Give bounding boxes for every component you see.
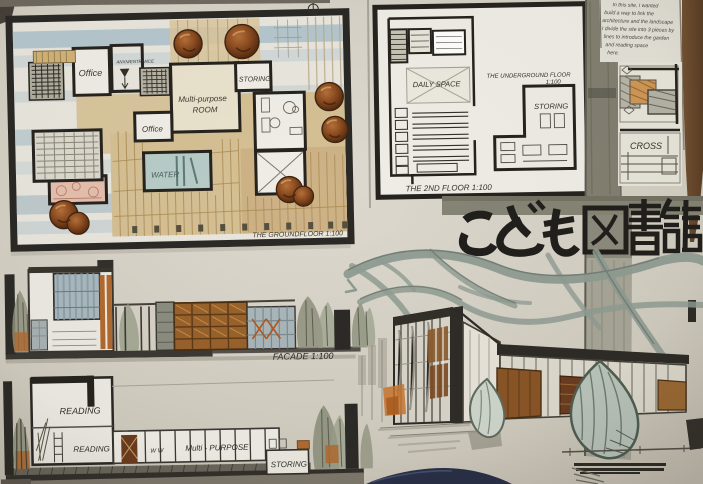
svg-text:DAILY SPACE: DAILY SPACE <box>413 79 462 89</box>
svg-text:Office: Office <box>79 68 103 79</box>
svg-text:here.: here. <box>607 50 619 56</box>
svg-text:STORING: STORING <box>239 76 271 84</box>
svg-text:1:100: 1:100 <box>546 80 562 86</box>
svg-text:Multi - PURPOSE: Multi - PURPOSE <box>185 443 249 453</box>
svg-text:W W: W W <box>150 448 164 454</box>
svg-text:ANXN/ENTRANCE: ANXN/ENTRANCE <box>115 59 154 65</box>
svg-text:READING: READING <box>73 444 110 454</box>
svg-text:Office: Office <box>142 124 164 133</box>
svg-text:CROSS: CROSS <box>630 141 662 151</box>
svg-text:In this site, I wanted: In this site, I wanted <box>612 2 659 9</box>
svg-text:ROOM: ROOM <box>192 105 217 115</box>
svg-text:READING: READING <box>60 406 101 417</box>
svg-text:WATER: WATER <box>151 170 180 180</box>
svg-text:STORING: STORING <box>534 101 568 111</box>
svg-text:THE 2ND FLOOR 1:100: THE 2ND FLOOR 1:100 <box>405 183 492 194</box>
svg-text:STORING: STORING <box>271 460 307 470</box>
svg-text:FACADE 1:100: FACADE 1:100 <box>273 351 334 362</box>
svg-text:and reading space: and reading space <box>605 42 648 49</box>
svg-text:Multi-purpose: Multi-purpose <box>178 94 227 104</box>
